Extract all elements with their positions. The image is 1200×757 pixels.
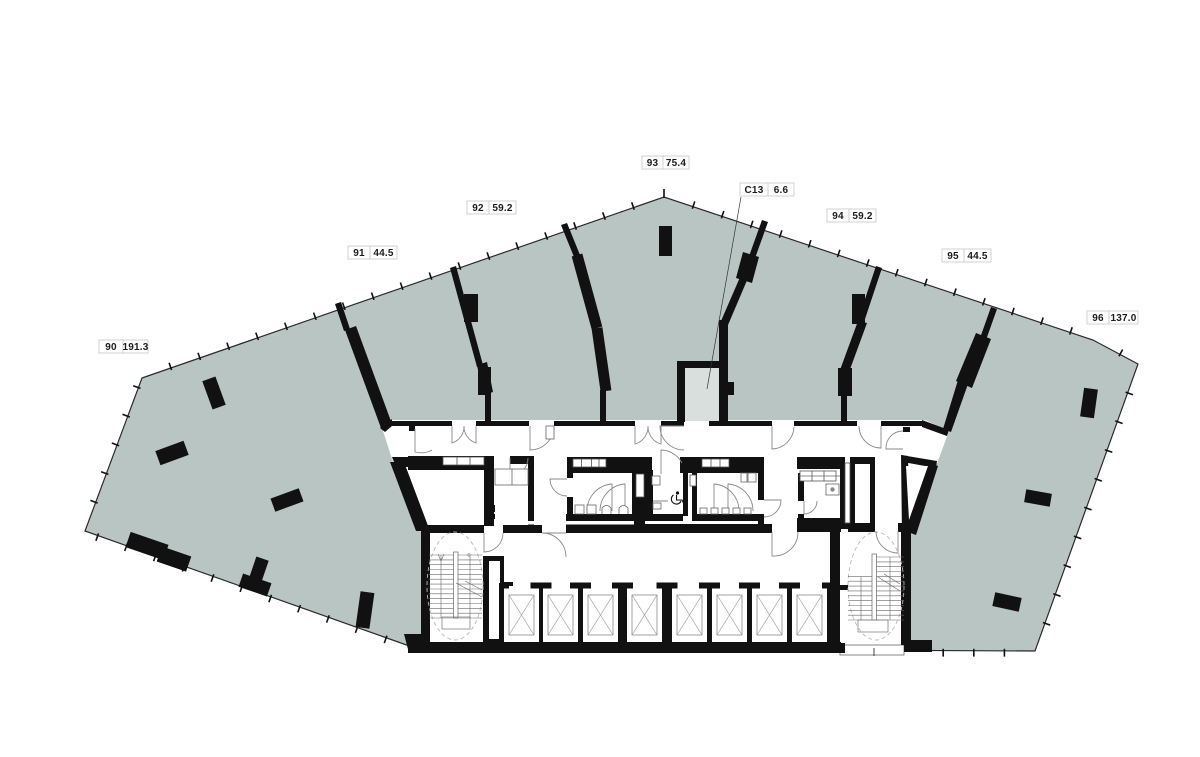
svg-text:59.2: 59.2 (492, 203, 513, 214)
svg-text:137.0: 137.0 (1110, 313, 1136, 324)
svg-text:95: 95 (947, 251, 959, 262)
svg-text:191.3: 191.3 (122, 342, 148, 353)
svg-text:C13: C13 (745, 185, 764, 196)
svg-text:44.5: 44.5 (967, 251, 988, 262)
svg-text:96: 96 (1092, 313, 1104, 324)
svg-text:94: 94 (832, 211, 844, 222)
svg-text:59.2: 59.2 (852, 211, 873, 222)
svg-text:92: 92 (472, 203, 484, 214)
svg-text:91: 91 (353, 248, 365, 259)
svg-text:90: 90 (105, 342, 117, 353)
svg-text:93: 93 (647, 158, 659, 169)
svg-text:44.5: 44.5 (373, 248, 394, 259)
svg-text:6.6: 6.6 (774, 185, 789, 196)
svg-text:75.4: 75.4 (666, 158, 687, 169)
